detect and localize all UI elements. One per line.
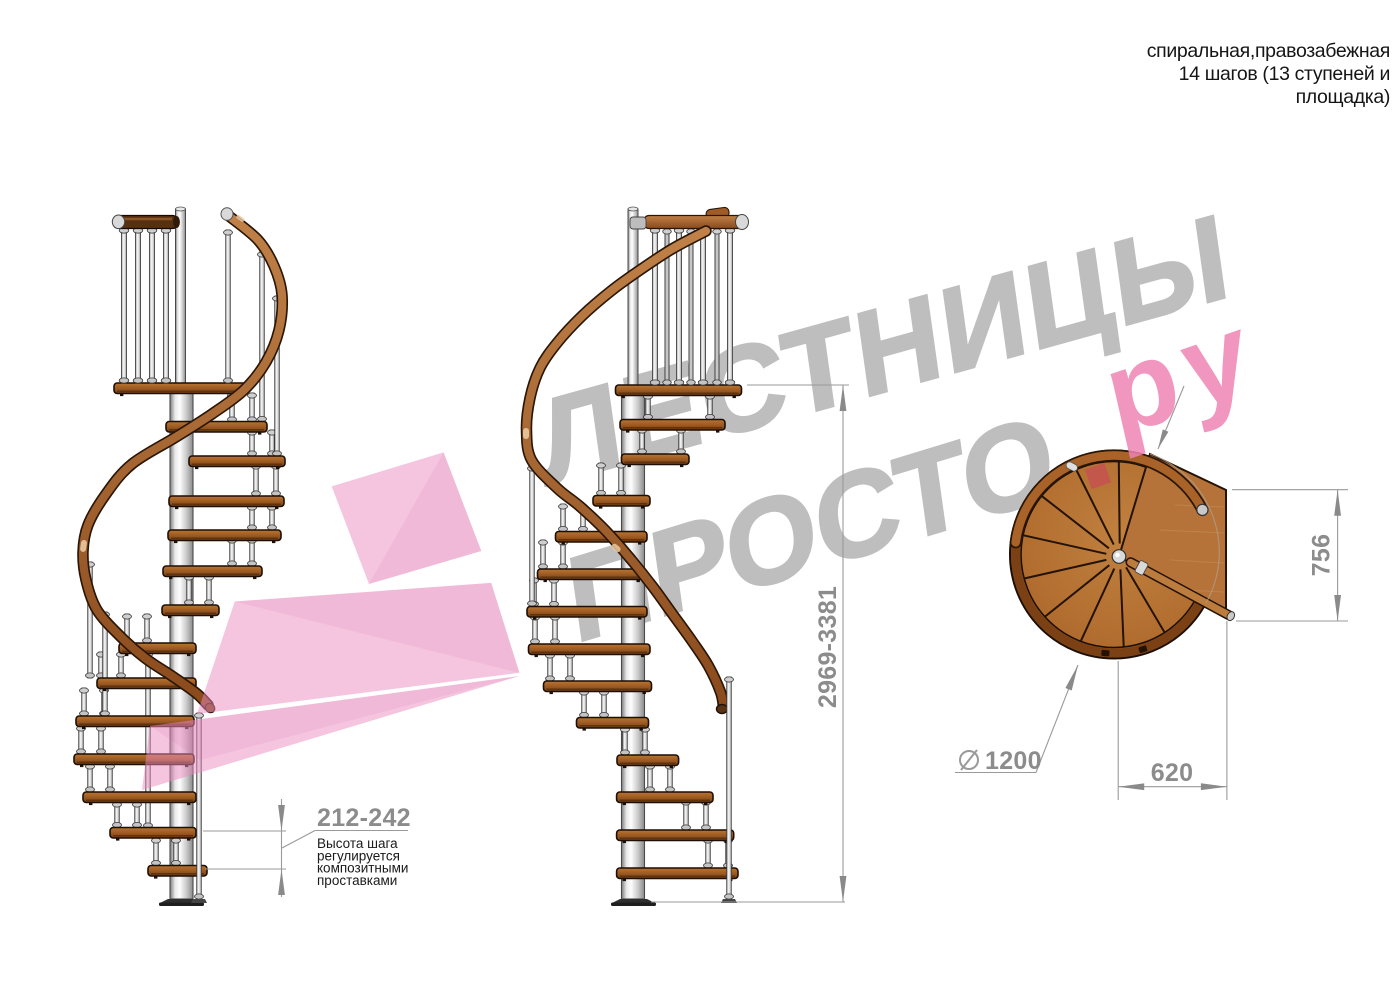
svg-text:спиральная,правозабежная: спиральная,правозабежная [1147,40,1390,62]
svg-text:14 шагов (13 ступеней и: 14 шагов (13 ступеней и [1179,63,1390,85]
svg-text:проставками: проставками [317,873,397,888]
svg-text:1200: 1200 [985,747,1042,775]
svg-text:756: 756 [1308,534,1336,577]
svg-text:212-242: 212-242 [317,804,411,832]
svg-text:2969-3381: 2969-3381 [814,586,842,708]
svg-text:площадка): площадка) [1296,86,1390,108]
svg-text:620: 620 [1151,759,1194,787]
